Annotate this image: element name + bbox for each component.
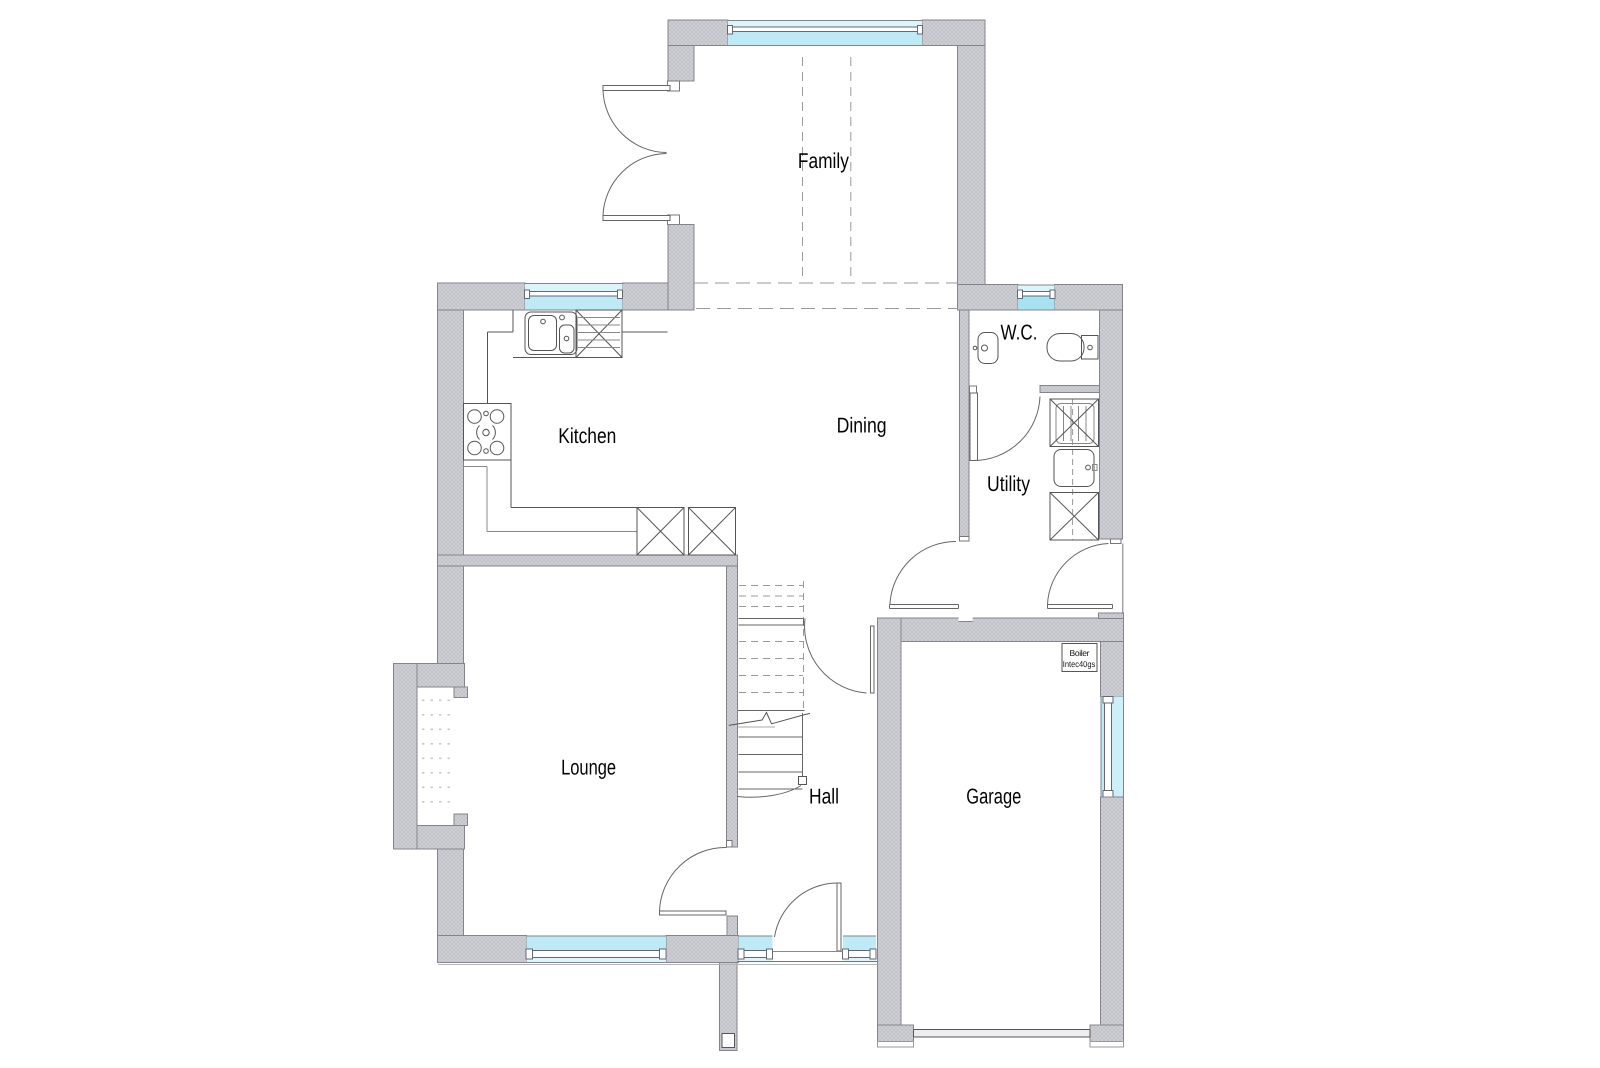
svg-text:Kitchen: Kitchen	[558, 424, 616, 448]
svg-text:Intec40gs: Intec40gs	[1063, 659, 1096, 669]
svg-text:Boiler: Boiler	[1070, 648, 1090, 658]
svg-text:Hall: Hall	[809, 784, 839, 808]
svg-text:Lounge: Lounge	[561, 755, 616, 779]
svg-text:Family: Family	[798, 149, 849, 173]
svg-text:W.C.: W.C.	[1001, 320, 1038, 344]
svg-text:Utility: Utility	[987, 472, 1030, 496]
svg-text:Garage: Garage	[966, 784, 1021, 808]
svg-text:Dining: Dining	[837, 413, 887, 437]
